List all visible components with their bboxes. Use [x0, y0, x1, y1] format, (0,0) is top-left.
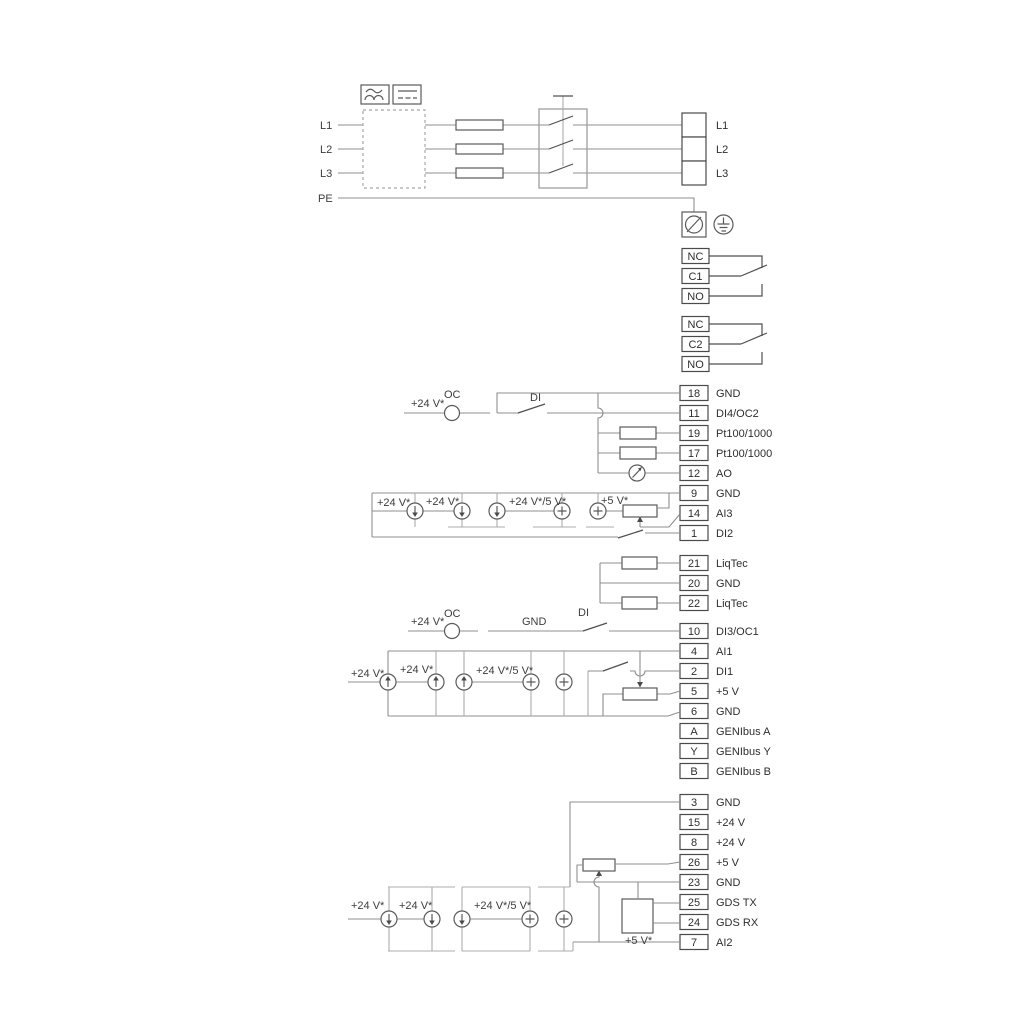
svg-text:AO: AO	[716, 468, 732, 480]
relay-cell: NO	[687, 291, 704, 303]
relay-cell: NO	[687, 359, 704, 371]
liqtec-sensor-resistor	[622, 557, 657, 569]
svg-text:23: 23	[688, 877, 700, 889]
terminal-row: 5+5 V	[680, 684, 740, 699]
power-section: L1 L2 L3 PE	[318, 85, 733, 237]
power-output-label: L2	[716, 144, 728, 156]
terminal-row: 11DI4/OC2	[680, 406, 759, 421]
fuse-symbols	[456, 120, 503, 178]
terminal-row: 4AI1	[680, 644, 733, 659]
ai3-section: +24 V* +24 V* +24 V*/5 V* +5 V*	[372, 493, 680, 538]
terminal-row: 15+24 V	[680, 815, 746, 830]
svg-text:12: 12	[688, 468, 700, 480]
current-source-down-icon	[454, 911, 470, 927]
wiring-diagram: L1 L2 L3 PE	[0, 0, 1024, 1024]
gnd18-rail	[497, 393, 680, 413]
ai2-gds-section: +24 V* +24 V* +24 V*/5 V* +5 V*	[348, 802, 680, 951]
power-output-label: L1	[716, 120, 728, 132]
svg-text:+5 V: +5 V	[716, 686, 740, 698]
svg-text:Y: Y	[690, 746, 698, 758]
svg-text:26: 26	[688, 857, 700, 869]
open-collector-icon	[445, 406, 460, 421]
terminal-row: 2DI1	[680, 664, 733, 679]
svg-text:11: 11	[688, 408, 699, 420]
terminal-row: 9GND	[680, 486, 741, 501]
v24-label: +24 V*	[400, 664, 434, 676]
svg-text:+24 V: +24 V	[716, 837, 746, 849]
svg-text:18: 18	[688, 388, 700, 400]
di1-wire	[588, 671, 680, 676]
terminal-row: 14AI3	[680, 506, 733, 521]
earth-ground-icon	[714, 215, 733, 234]
power-output-label: L3	[716, 168, 728, 180]
di-label: DI	[530, 392, 541, 404]
svg-text:8: 8	[691, 837, 697, 849]
liqtec-sensor-resistor	[622, 597, 657, 609]
potentiometer	[623, 505, 657, 517]
relay-1-block: NC C1 NO	[682, 249, 767, 304]
current-source-up-icon	[428, 674, 444, 690]
svg-text:15: 15	[688, 817, 700, 829]
di3-switch	[583, 623, 607, 631]
gnd3-wire	[570, 802, 680, 887]
svg-text:B: B	[690, 766, 697, 778]
current-source-down-icon	[489, 503, 505, 519]
v24-label: +24 V*	[351, 900, 385, 912]
relay-1-contact	[709, 256, 767, 296]
svg-text:GENIbus A: GENIbus A	[716, 726, 771, 738]
svg-text:GDS RX: GDS RX	[716, 917, 759, 929]
svg-text:9: 9	[691, 488, 697, 500]
svg-text:LiqTec: LiqTec	[716, 598, 748, 610]
svg-text:A: A	[690, 726, 698, 738]
svg-text:14: 14	[688, 508, 700, 520]
terminal-row: 7AI2	[680, 935, 733, 950]
pt100-resistor	[620, 447, 656, 459]
potentiometer	[583, 859, 615, 871]
terminal-row: 18GND	[680, 386, 741, 401]
svg-text:AI2: AI2	[716, 937, 733, 949]
terminal-row: BGENIbus B	[680, 764, 771, 779]
power-input-label: PE	[318, 193, 333, 205]
current-source-down-icon	[381, 911, 397, 927]
svg-text:+5 V: +5 V	[716, 857, 740, 869]
voltage-source-icon	[556, 911, 572, 927]
ac-symbol-icon	[361, 85, 389, 104]
ai1-section: +24 V* +24 V* +24 V*/5 V*	[348, 651, 680, 716]
svg-text:10: 10	[688, 626, 700, 638]
terminal-row: 19Pt100/1000	[680, 426, 772, 441]
voltage-source-icon	[556, 674, 572, 690]
svg-text:GENIbus Y: GENIbus Y	[716, 746, 771, 758]
svg-text:GND: GND	[716, 488, 741, 500]
potentiometer	[623, 688, 657, 700]
power-input-label: L1	[320, 120, 332, 132]
svg-text:6: 6	[691, 706, 697, 718]
di3-oc1-section: +24 V* OC GND DI	[408, 607, 680, 639]
svg-text:1: 1	[691, 528, 697, 540]
io-terminal-strip: 18GND 11DI4/OC2 19Pt100/1000 17Pt100/100…	[680, 386, 772, 950]
power-input-label: L2	[320, 144, 332, 156]
svg-text:GND: GND	[716, 388, 741, 400]
svg-text:GND: GND	[716, 877, 741, 889]
svg-text:DI3/OC1: DI3/OC1	[716, 626, 759, 638]
main-switch	[539, 96, 587, 188]
power-input-label: L3	[320, 168, 332, 180]
terminal-row: 25GDS TX	[680, 895, 757, 910]
terminal-row: 12AO	[680, 466, 732, 481]
svg-text:DI1: DI1	[716, 666, 733, 678]
pot-wiper-arrow	[637, 682, 643, 688]
v24-label: +24 V*	[377, 497, 411, 509]
terminal-row: 26+5 V	[680, 855, 740, 870]
relay-cell: C2	[688, 339, 702, 351]
v24-label: +24 V*	[399, 900, 433, 912]
di1-switch	[603, 662, 628, 671]
current-source-up-icon	[456, 674, 472, 690]
relay-cell: C1	[688, 271, 702, 283]
svg-text:AI1: AI1	[716, 646, 733, 658]
svg-text:7: 7	[691, 937, 697, 949]
oc-label: OC	[444, 389, 461, 401]
v24-5v-label: +24 V*/5 V*	[474, 900, 532, 912]
terminal-row: 21LiqTec	[680, 556, 748, 571]
svg-text:21: 21	[688, 558, 700, 570]
relay-cell: NC	[688, 319, 704, 331]
terminal-row: AGENIbus A	[680, 724, 771, 739]
v24-5v-label: +24 V*/5 V*	[509, 496, 567, 508]
v24-label: +24 V*	[411, 398, 445, 410]
open-collector-icon	[445, 624, 460, 639]
terminal-row: 20GND	[680, 576, 741, 591]
voltage-source-icon	[522, 911, 538, 927]
svg-text:GND: GND	[716, 706, 741, 718]
terminal-row: 3GND	[680, 795, 741, 810]
pe-screw-terminal	[682, 212, 706, 237]
v24-label: +24 V*	[411, 616, 445, 628]
dc-symbol-icon	[393, 85, 421, 104]
terminal-row: 17Pt100/1000	[680, 446, 772, 461]
svg-text:24: 24	[688, 917, 700, 929]
terminal-row: YGENIbus Y	[680, 744, 771, 759]
svg-text:AI3: AI3	[716, 508, 733, 520]
pt100-resistor	[620, 427, 656, 439]
relay-2-contact	[709, 324, 767, 364]
ai2-pot-wiper-wire	[594, 874, 599, 942]
svg-text:GND: GND	[716, 578, 741, 590]
analog-output-meter-icon	[629, 465, 645, 481]
liqtec-section	[600, 557, 680, 609]
di-switch	[518, 404, 545, 413]
svg-text:DI2: DI2	[716, 528, 733, 540]
terminal-row: 8+24 V	[680, 835, 746, 850]
svg-text:19: 19	[688, 428, 700, 440]
di4-oc2-section: +24 V* OC DI	[404, 389, 680, 481]
svg-text:+24 V: +24 V	[716, 817, 746, 829]
v24-label: +24 V*	[426, 496, 460, 508]
svg-text:5: 5	[691, 686, 697, 698]
gnd-label: GND	[522, 616, 547, 628]
svg-text:LiqTec: LiqTec	[716, 558, 748, 570]
svg-text:GENIbus B: GENIbus B	[716, 766, 771, 778]
svg-text:3: 3	[691, 797, 697, 809]
mains-wires	[338, 125, 694, 212]
svg-text:DI4/OC2: DI4/OC2	[716, 408, 759, 420]
svg-text:20: 20	[688, 578, 700, 590]
terminal-row: 10DI3/OC1	[680, 624, 759, 639]
terminal-row: 1DI2	[680, 526, 733, 541]
v24-label: +24 V*	[351, 668, 385, 680]
terminal-row: 23GND	[680, 875, 741, 890]
svg-text:25: 25	[688, 897, 700, 909]
oc-label: OC	[444, 608, 461, 620]
svg-text:4: 4	[691, 646, 697, 658]
di2-switch	[618, 530, 643, 538]
current-source-down-icon	[424, 911, 440, 927]
svg-text:Pt100/1000: Pt100/1000	[716, 448, 772, 460]
relay-cell: NC	[688, 251, 704, 263]
svg-text:GDS TX: GDS TX	[716, 897, 757, 909]
di-label: DI	[578, 607, 589, 619]
v24-5v-label: +24 V*/5 V*	[476, 665, 534, 677]
terminal-row: 22LiqTec	[680, 596, 748, 611]
power-terminal-block: L1 L2 L3	[682, 113, 728, 185]
terminal-row: 6GND	[680, 704, 741, 719]
svg-text:22: 22	[688, 598, 700, 610]
converter-box	[363, 110, 425, 188]
wiring-diagram-page: L1 L2 L3 PE	[0, 0, 1024, 1024]
svg-text:Pt100/1000: Pt100/1000	[716, 428, 772, 440]
terminal-row: 24GDS RX	[680, 915, 759, 930]
svg-text:17: 17	[688, 448, 700, 460]
relay-2-block: NC C2 NO	[682, 317, 767, 372]
v5-label: +5 V*	[625, 935, 653, 947]
gds-sensor-box	[622, 882, 680, 933]
svg-text:GND: GND	[716, 797, 741, 809]
svg-text:2: 2	[691, 666, 697, 678]
